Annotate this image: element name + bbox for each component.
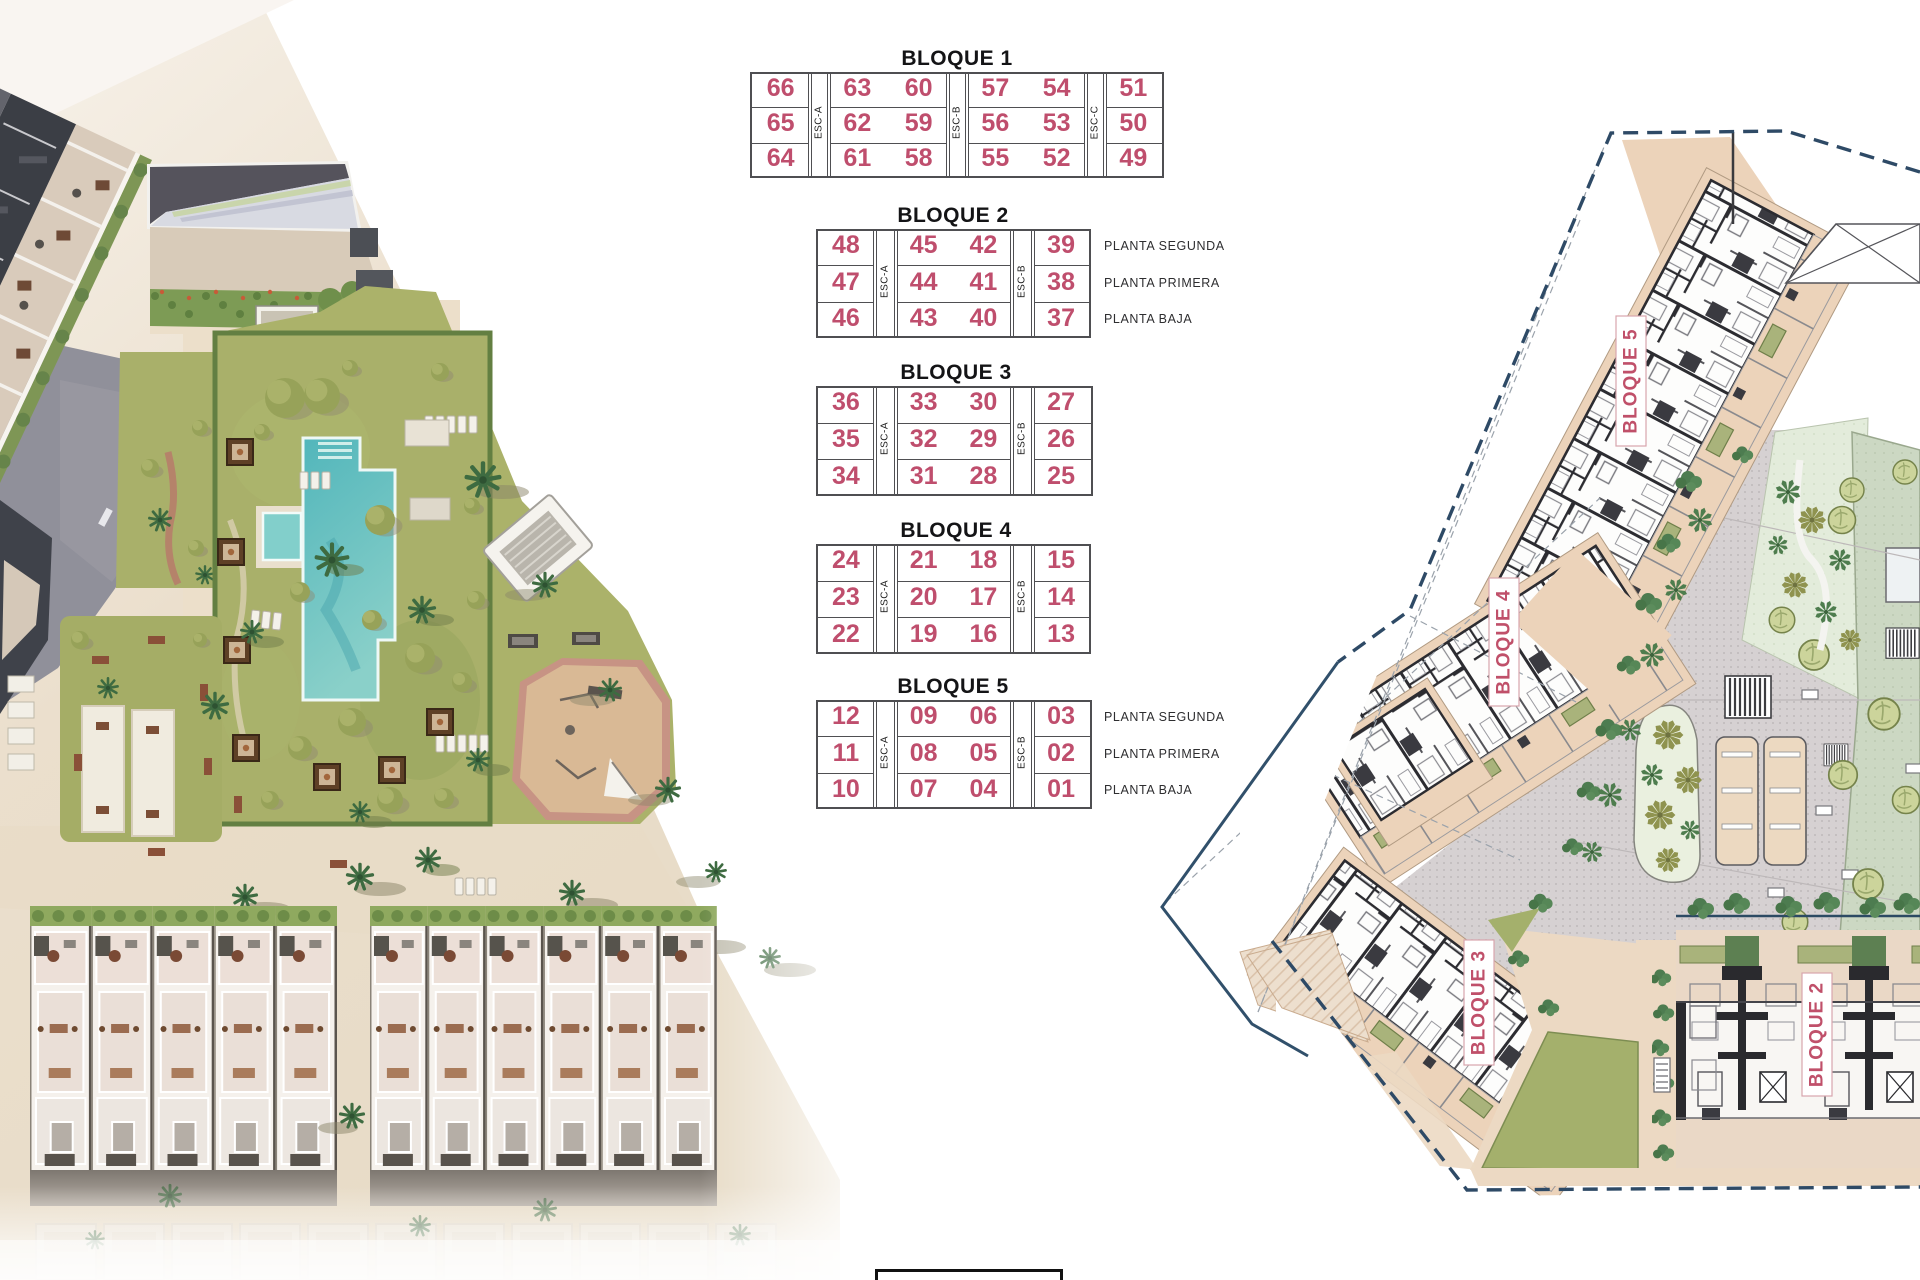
svg-text:BLOQUE 5: BLOQUE 5 [1621,328,1642,433]
svg-text:BLOQUE 4: BLOQUE 4 [1494,589,1515,694]
svg-text:BLOQUE 2: BLOQUE 2 [1807,982,1828,1087]
svg-text:BLOQUE 3: BLOQUE 3 [1469,950,1490,1055]
